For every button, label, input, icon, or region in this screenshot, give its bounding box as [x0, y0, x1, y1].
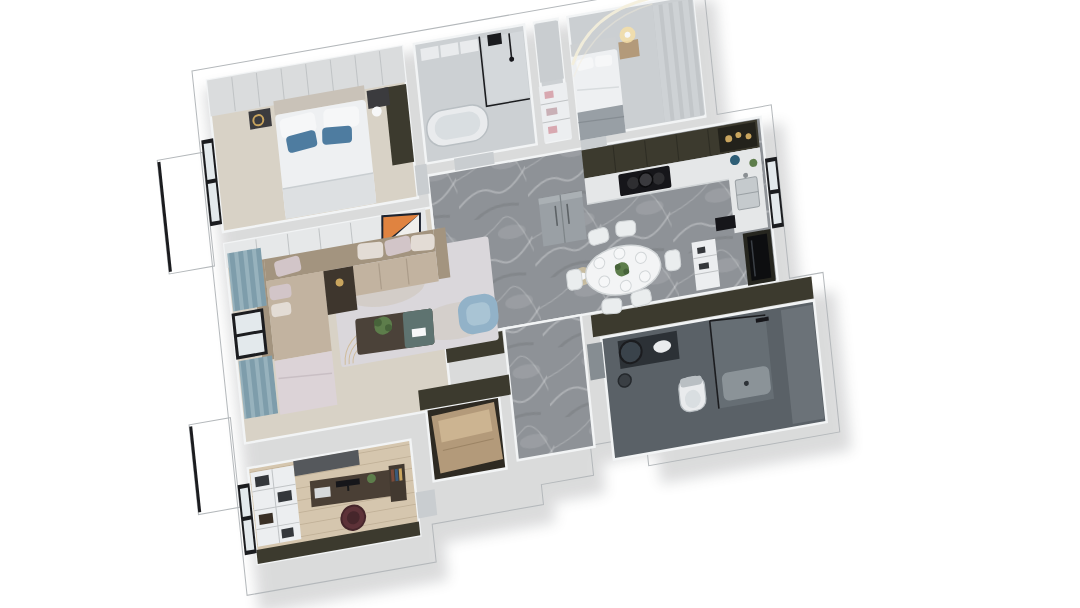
- balcony-slab-lower: [189, 418, 240, 515]
- dining-chair: [566, 268, 583, 291]
- toilet: [678, 375, 707, 413]
- living-window: [232, 308, 268, 359]
- dining-chair: [602, 298, 622, 315]
- pillow: [323, 106, 359, 130]
- corner-side-table: [323, 266, 357, 315]
- throw-pillow: [411, 233, 435, 251]
- nightstand-right: [367, 87, 391, 109]
- dining-chair: [616, 220, 636, 237]
- chaise-lounge: [275, 351, 338, 415]
- apartment-plan: [149, 0, 846, 603]
- study-door: [416, 489, 437, 518]
- pantry-glass-cabinet: [743, 229, 776, 286]
- curtains-lower: [239, 355, 279, 419]
- curtains-upper: [227, 248, 267, 312]
- dining-chair: [664, 249, 681, 272]
- floorplan-page: 3D rendered apartment floor plan, top-do…: [0, 0, 1080, 608]
- nightstand-left: [248, 108, 272, 130]
- entry-hall-marble-floor: [504, 315, 595, 460]
- floorplan-render: 3D rendered apartment floor plan, top-do…: [0, 0, 1080, 608]
- throw-pillow: [357, 241, 383, 260]
- pillow: [595, 54, 612, 67]
- bookshelf: [250, 465, 301, 546]
- glass-balustrade: [189, 426, 201, 512]
- glass-balustrade: [157, 162, 171, 272]
- double-bed: [273, 85, 376, 219]
- blue-pillow: [322, 125, 352, 145]
